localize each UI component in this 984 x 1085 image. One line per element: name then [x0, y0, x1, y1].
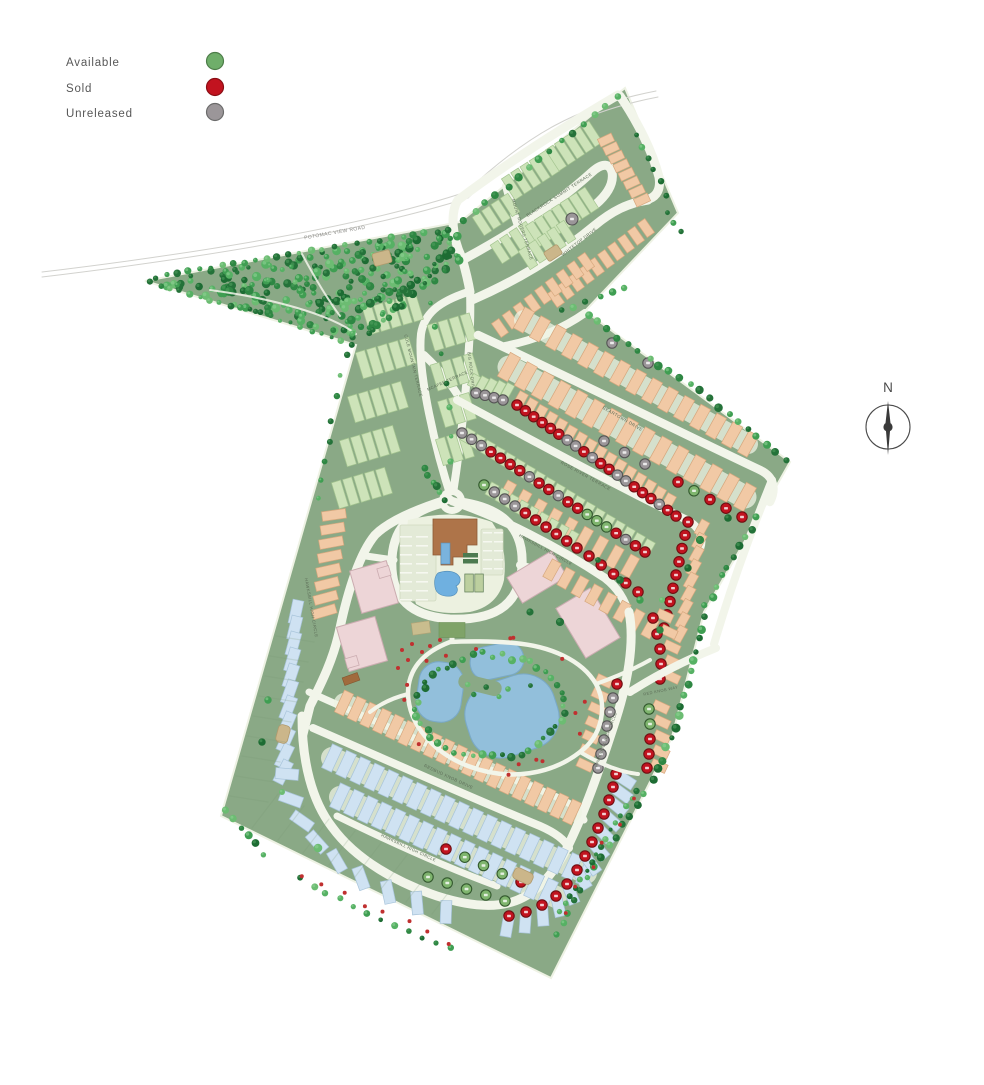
- svg-text:Unreleased: Unreleased: [66, 108, 133, 120]
- svg-text:Sold: Sold: [66, 83, 92, 95]
- svg-text:N: N: [883, 380, 893, 395]
- svg-text:Available: Available: [66, 57, 120, 69]
